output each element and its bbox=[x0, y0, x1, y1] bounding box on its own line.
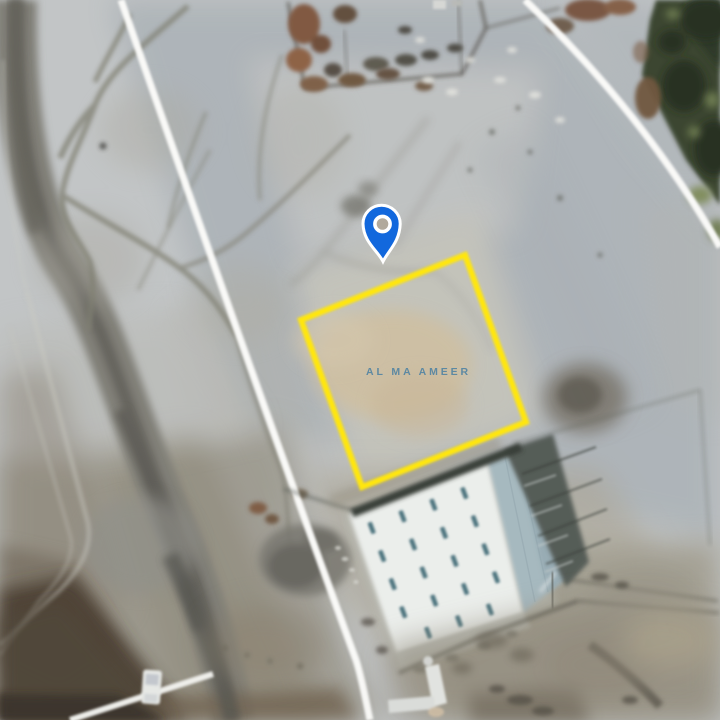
svg-text:AL MA AMEER: AL MA AMEER bbox=[366, 366, 471, 378]
